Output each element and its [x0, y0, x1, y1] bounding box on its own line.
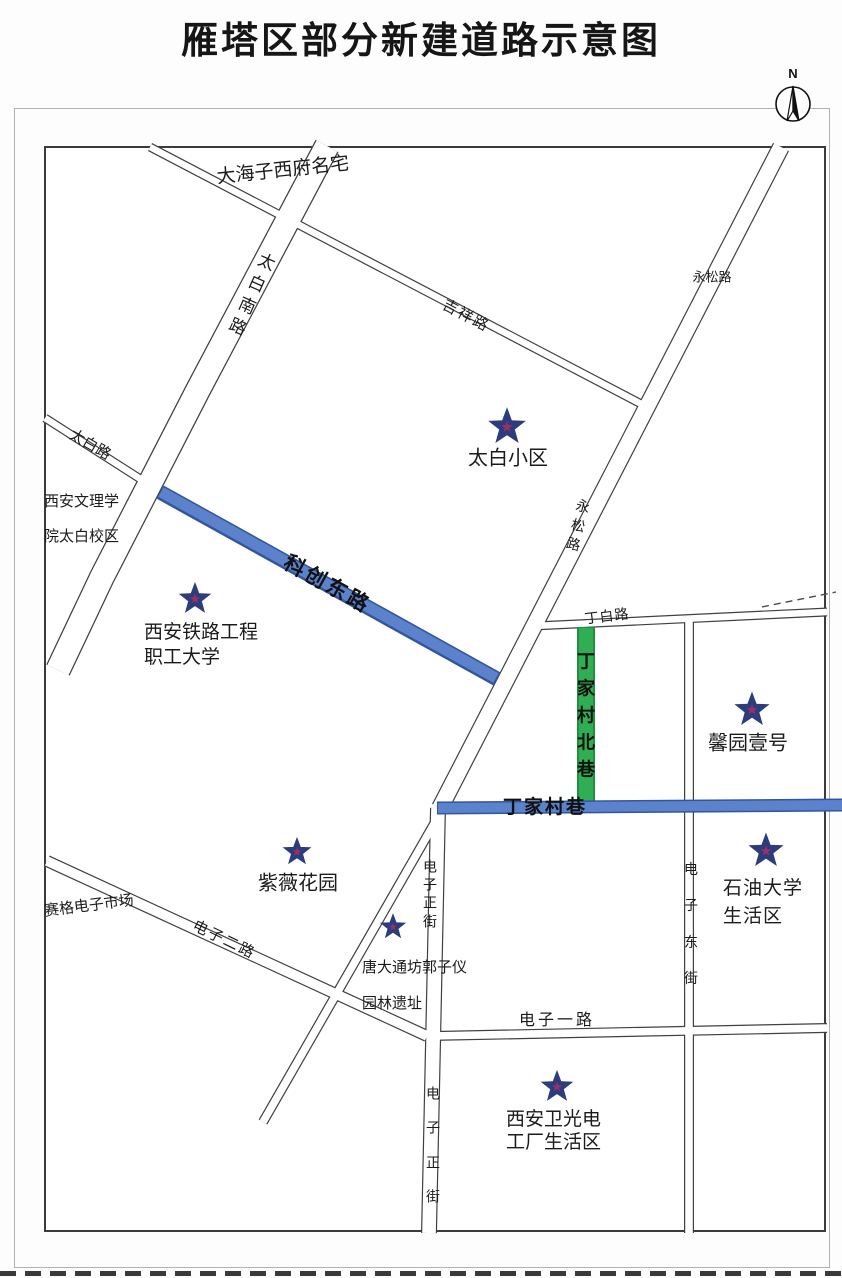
- place-label-line: 职工大学: [144, 645, 258, 670]
- place-label-shiyou-univ: 石油大学 生活区: [723, 875, 803, 931]
- bottom-dashed-border: [0, 1271, 842, 1276]
- map-canvas: 雁塔区部分新建道路示意图: [0, 0, 842, 1278]
- star-icon: [544, 1074, 570, 1100]
- star-icon: [752, 837, 780, 865]
- place-label-taibai-estate: 太白小区: [468, 448, 548, 471]
- place-label-line: 园林遗址: [362, 986, 467, 1022]
- place-label-line: 西安文理学: [44, 484, 119, 519]
- road-label-dianzi-dongjie: 电子东街: [683, 851, 699, 997]
- star-icon: [182, 586, 208, 612]
- place-label-railway-college: 西安铁路工程 职工大学: [144, 620, 258, 670]
- place-label-ziwei-garden: 紫薇花园: [258, 873, 338, 896]
- star-icon: [383, 917, 404, 938]
- place-label-line: 石油大学: [723, 875, 803, 903]
- star-icon: [492, 412, 522, 442]
- place-label-line: 西安铁路工程: [144, 620, 258, 645]
- page-title: 雁塔区部分新建道路示意图: [0, 10, 842, 64]
- compass-icon: [770, 80, 816, 128]
- place-label-line: 唐大通坊郭子仪: [362, 950, 467, 986]
- place-label-tang-ruins: 唐大通坊郭子仪 园林遗址: [362, 950, 467, 1022]
- north-label: N: [770, 68, 816, 80]
- place-label-line: 院太白校区: [44, 519, 119, 554]
- star-icon: [286, 841, 309, 864]
- place-label-wenli-college: 西安文理学 院太白校区: [44, 484, 119, 554]
- star-icon: [738, 696, 766, 724]
- road-label-dianzi-zhengjie-south: 电子正街: [425, 1076, 441, 1213]
- road-label-dingjiacun-north-lane: 丁家村北巷: [576, 649, 597, 784]
- place-label-line: 西安卫光电: [506, 1108, 601, 1131]
- road-label-yongsong-north: 永松路: [692, 271, 731, 286]
- map-inner-frame: [44, 146, 826, 1232]
- place-label-weiguang: 西安卫光电 工厂生活区: [506, 1108, 601, 1154]
- road-label-dingjiacun-lane: 丁家村巷: [503, 797, 587, 819]
- road-label-dianzi-zhengjie-north: 电子正街: [422, 858, 438, 931]
- road-label-dianzi-yilu: 电子一路: [519, 1012, 595, 1030]
- north-arrow: N: [770, 68, 816, 130]
- place-label-line: 生活区: [723, 903, 803, 931]
- place-label-xinyuan: 馨园壹号: [708, 733, 788, 756]
- place-label-line: 工厂生活区: [506, 1131, 601, 1154]
